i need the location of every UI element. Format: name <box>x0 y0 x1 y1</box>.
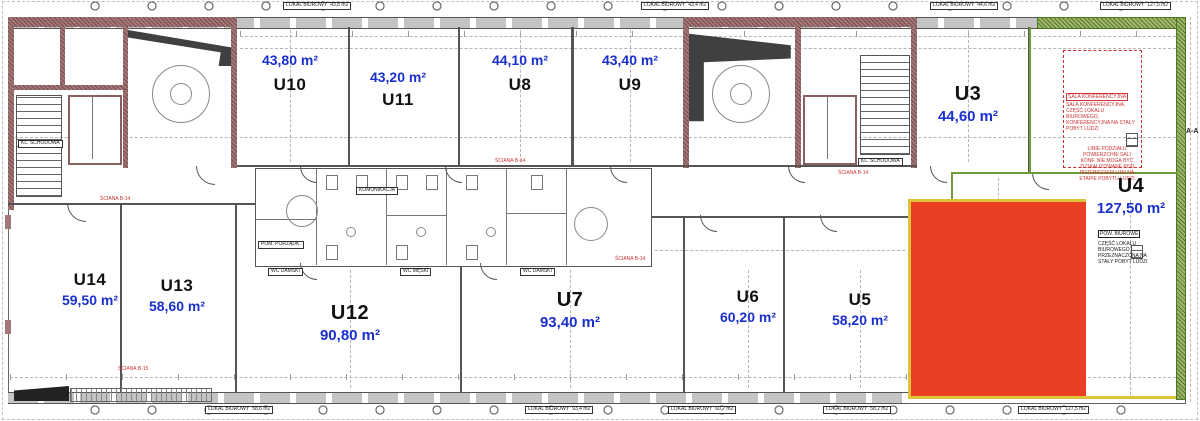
sciana-note: ŚCIANA B-15 <box>118 366 148 372</box>
unit-label-u5: U5 58,20 m² <box>820 291 900 327</box>
lokal-label-bottom: LOKAL BIUROWY58,2 m2 <box>823 406 891 414</box>
section-marker: A-A <box>1186 128 1198 135</box>
stairs-right <box>860 55 910 155</box>
highlighted-unit-u4[interactable] <box>911 202 1086 396</box>
stair-label-right: KL. SCHODOWA <box>858 158 903 166</box>
corridor-wall <box>8 203 255 205</box>
wall <box>683 17 917 27</box>
conference-text: SALA KONFERENCYJNA, CZĘŚĆ LOKALU BIUROWE… <box>1066 102 1136 132</box>
yellow-boundary <box>908 396 1176 399</box>
unit-label-u11: 43,20 m² U11 <box>358 70 438 108</box>
dim-line <box>10 137 1176 138</box>
green-boundary <box>952 172 1178 174</box>
stair-label-left: KL. SCHODOWA <box>18 140 63 148</box>
unit-label-u4: U4 127,50 m² <box>1088 176 1174 216</box>
axis-line <box>1190 17 1191 402</box>
green-wall-band-right <box>1176 17 1186 400</box>
axis-line <box>860 270 861 388</box>
wall <box>231 27 237 168</box>
wall-pier <box>5 320 11 334</box>
green-boundary <box>1029 27 1031 173</box>
sciana-note: ŚCIANA B-14 <box>495 158 525 164</box>
unit-label-u13: U13 58,60 m² <box>137 277 217 313</box>
axis-bubbles-top <box>90 1 1170 12</box>
shaft-hatch <box>1126 133 1138 147</box>
lokal-label-bottom: LOKAL BIUROWY127,5 m2 <box>1018 406 1089 414</box>
wall <box>123 27 128 168</box>
wall <box>460 264 462 392</box>
dim-line <box>655 250 905 251</box>
wall <box>348 27 350 166</box>
lokal-label-top: LOKAL BIUROWY43,8 m2 <box>283 2 351 10</box>
corridor-wall <box>650 216 908 218</box>
unit-label-u6: U6 60,20 m² <box>708 288 788 324</box>
elevator-divider <box>827 97 828 159</box>
wall <box>911 27 917 168</box>
axis-line <box>290 30 291 162</box>
wall <box>795 27 801 168</box>
sciana-note: ŚCIANA B-14 <box>615 256 645 262</box>
wall <box>14 85 125 90</box>
wall-pier <box>5 215 11 229</box>
wall <box>683 27 689 168</box>
wc-damski-label: WC DAMSKI <box>268 268 303 276</box>
wall <box>683 216 685 392</box>
lokal-label-top: LOKAL BIUROWY127,5 m2 <box>1100 2 1171 10</box>
elevator-divider <box>92 97 93 159</box>
lokal-label-top: LOKAL BIUROWY44,6 m2 <box>930 2 998 10</box>
pom-label: POM. PORZĄDK. <box>258 241 304 249</box>
unit-label-u10: 43,80 m² U10 <box>250 53 330 93</box>
wall <box>60 27 65 87</box>
lokal-label-bottom: LOKAL BIUROWY60,2 m2 <box>668 406 736 414</box>
wall <box>8 17 237 27</box>
unit-label-u9: 43,40 m² U9 <box>590 53 670 93</box>
wc-damski-label-2: WC DAMSKI <box>520 268 555 276</box>
unit-label-u8: 44,10 m² U8 <box>480 53 560 93</box>
pow-box: POW. BIUROWE CZĘŚĆ LOKALU BIUROWEGO PRZE… <box>1098 222 1160 265</box>
unit-label-u14: U14 59,50 m² <box>50 271 130 307</box>
sciana-note: ŚCIANA B-14 <box>100 196 130 202</box>
komunikacja-label: KOMUNIKACJA <box>356 187 398 195</box>
unit-label-u3: U3 44,60 m² <box>928 84 1008 124</box>
elevator-left <box>68 95 122 165</box>
unit-label-u12: U12 90,80 m² <box>305 303 395 343</box>
turning-circle-inner <box>170 83 192 105</box>
sciana-note: ŚCIANA B-14 <box>838 170 868 176</box>
elevator-right <box>803 95 857 165</box>
lokal-label-bottom: LOKAL BIUROWY58,6 m2 <box>205 406 273 414</box>
green-boundary <box>951 172 953 202</box>
lokal-label-bottom: LOKAL BIUROWY93,4 m2 <box>525 406 593 414</box>
green-wall-band-top <box>1037 17 1178 29</box>
wall <box>8 27 14 210</box>
floor-plan: KL. SCHODOWA KL. SCHODOWA <box>0 0 1200 421</box>
lokal-label-top: LOKAL BIUROWY43,4 m2 <box>641 2 709 10</box>
entrance-steps <box>70 388 212 402</box>
corridor-wall <box>237 165 917 167</box>
wall <box>235 205 237 392</box>
wall <box>458 27 460 166</box>
axis-line <box>520 30 521 162</box>
conference-title: SALA KONFERENCYJNA <box>1066 93 1128 101</box>
axis-line <box>630 30 631 162</box>
turning-circle-inner <box>730 83 752 105</box>
wc-meski-label: WC MĘSKI <box>400 268 431 276</box>
unit-label-u7: U7 93,40 m² <box>525 290 615 330</box>
wall <box>571 27 574 166</box>
